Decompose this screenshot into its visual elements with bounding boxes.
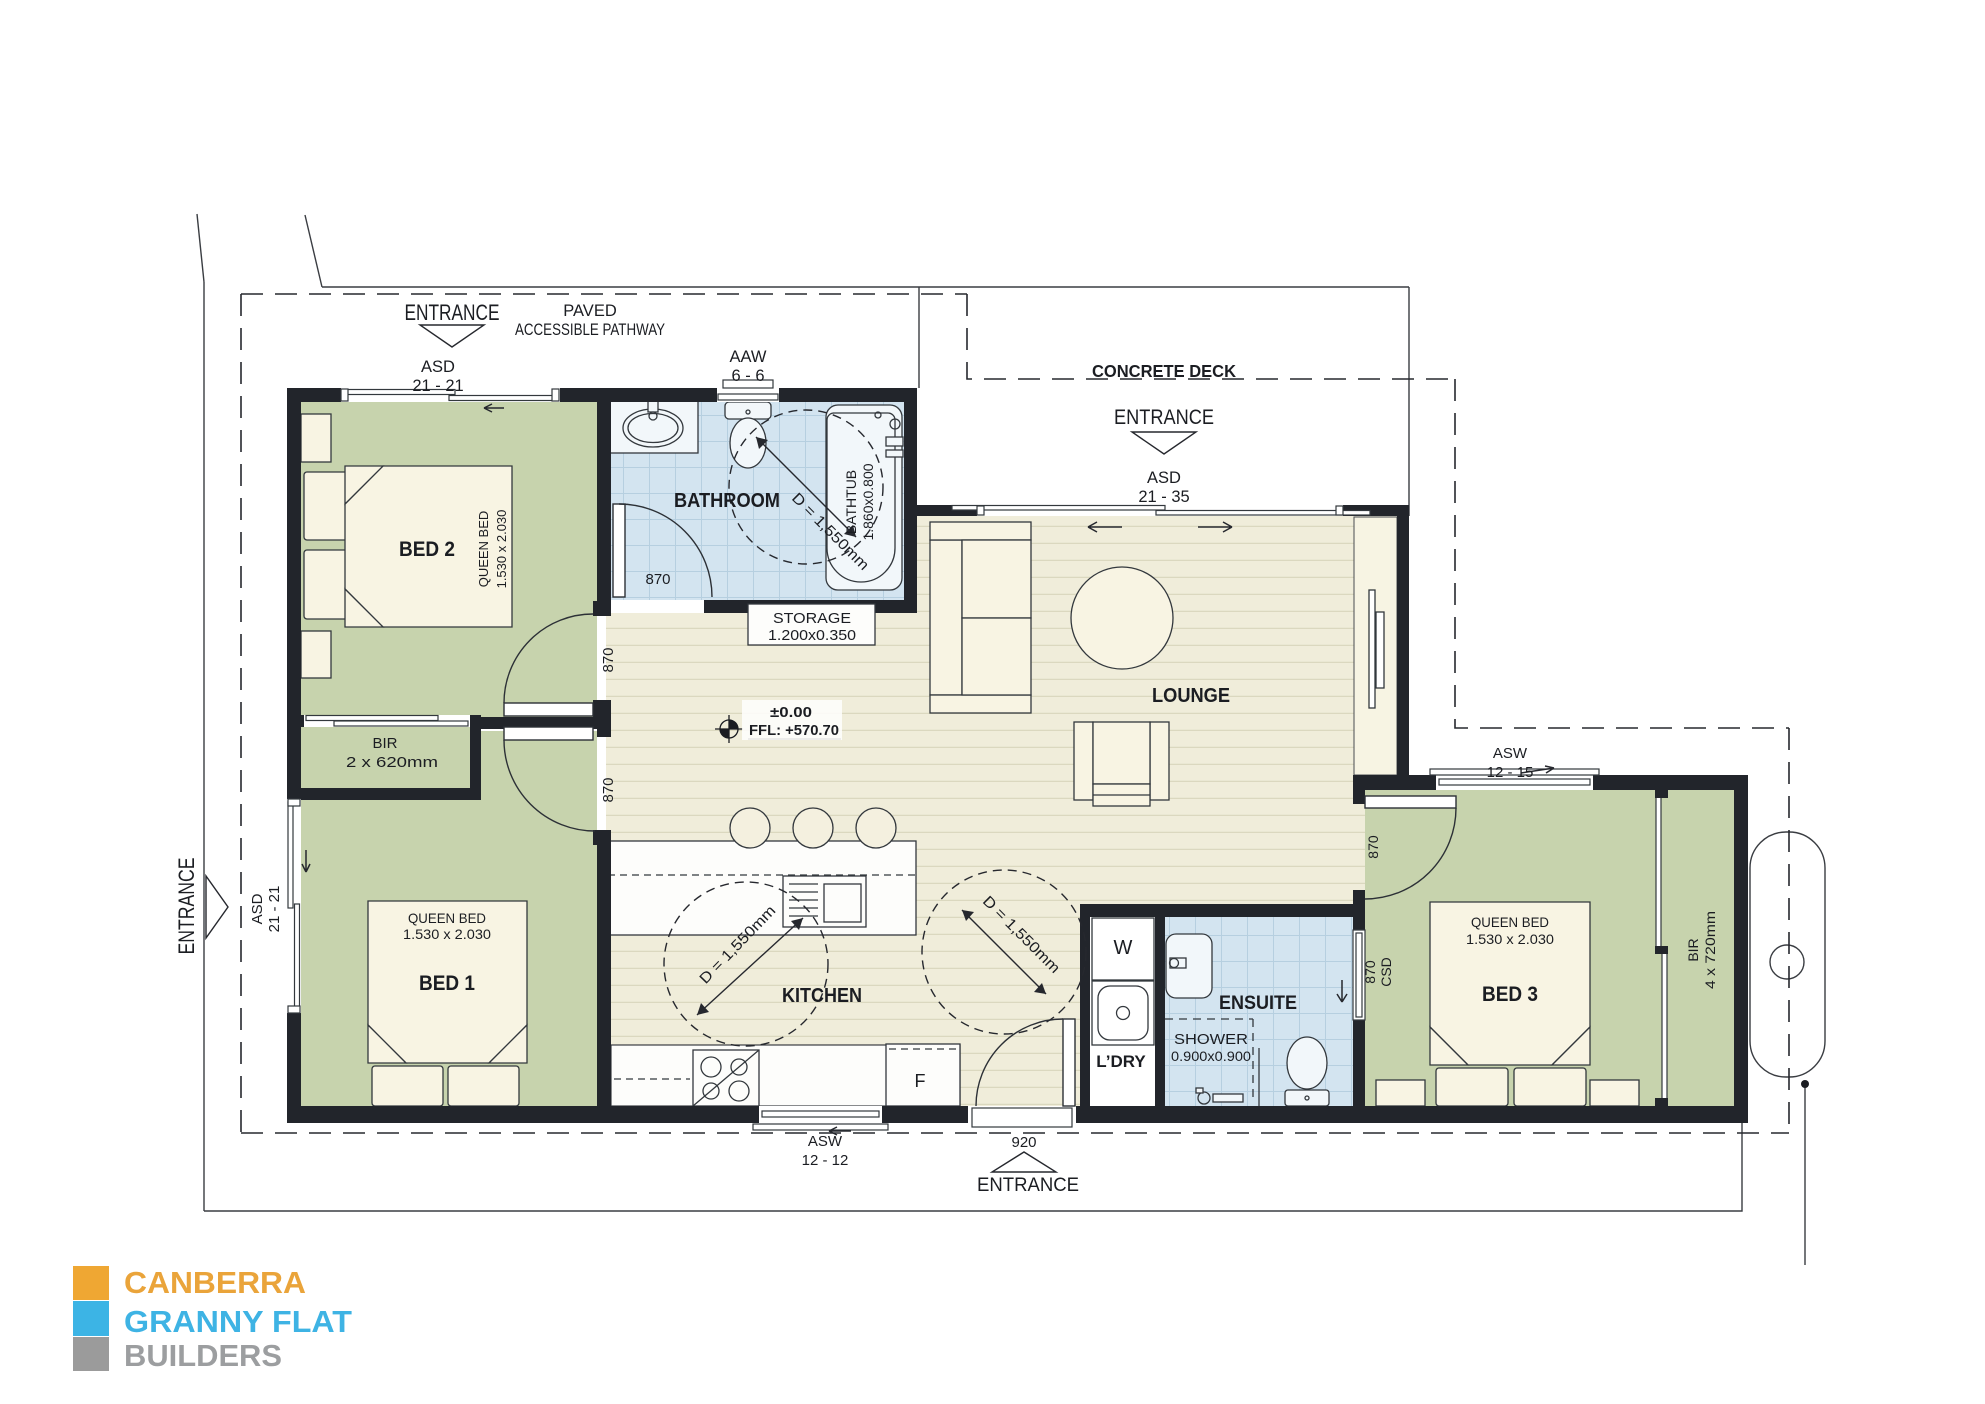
svg-text:BUILDERS: BUILDERS [124,1338,282,1373]
svg-text:12 - 12: 12 - 12 [802,1152,849,1169]
svg-text:PAVED: PAVED [563,302,617,320]
svg-text:FFL: +570.70: FFL: +570.70 [749,722,839,739]
svg-text:W: W [1114,937,1133,959]
svg-text:0.900x0.900: 0.900x0.900 [1171,1048,1251,1064]
svg-text:ASW: ASW [1493,745,1528,762]
svg-text:ENTRANCE: ENTRANCE [1114,406,1214,429]
svg-text:CSD: CSD [1378,957,1394,987]
svg-text:ASD: ASD [249,893,266,924]
svg-text:BED 3: BED 3 [1482,983,1538,1006]
svg-text:1.200x0.350: 1.200x0.350 [768,627,856,644]
svg-text:BED 1: BED 1 [419,972,475,995]
svg-text:ASW: ASW [808,1133,843,1150]
svg-text:870: 870 [600,647,617,672]
svg-text:±0.00: ±0.00 [770,704,812,721]
svg-text:SHOWER: SHOWER [1174,1031,1248,1048]
svg-text:920: 920 [1011,1134,1036,1151]
svg-text:BIR: BIR [1685,938,1701,961]
svg-text:21 - 21: 21 - 21 [412,377,463,395]
svg-text:870: 870 [645,571,670,588]
svg-text:ASD: ASD [421,358,455,376]
svg-text:BED 2: BED 2 [399,538,455,561]
svg-text:ASD: ASD [1147,469,1181,487]
svg-text:2 x 620mm: 2 x 620mm [346,754,438,771]
svg-text:QUEEN BED: QUEEN BED [476,511,491,588]
svg-text:21 - 35: 21 - 35 [1138,488,1189,506]
svg-text:870: 870 [1362,960,1378,984]
svg-text:KITCHEN: KITCHEN [782,985,862,1007]
svg-text:BATHROOM: BATHROOM [674,490,780,512]
svg-text:4 x 720mm: 4 x 720mm [1702,911,1718,989]
svg-text:F: F [915,1071,926,1091]
svg-text:ACCESSIBLE PATHWAY: ACCESSIBLE PATHWAY [515,321,665,339]
svg-text:ENTRANCE: ENTRANCE [405,300,500,325]
svg-text:870: 870 [1365,835,1381,859]
svg-text:BIR: BIR [372,735,397,752]
svg-text:12 - 15: 12 - 15 [1487,764,1534,781]
svg-text:STORAGE: STORAGE [773,610,851,627]
svg-text:QUEEN BED: QUEEN BED [408,910,486,926]
svg-text:L’DRY: L’DRY [1096,1052,1146,1071]
svg-text:AAW: AAW [730,348,767,366]
svg-text:CONCRETE DECK: CONCRETE DECK [1092,361,1236,381]
svg-text:QUEEN BED: QUEEN BED [1471,914,1549,930]
svg-text:1.860x0.800: 1.860x0.800 [860,463,876,540]
svg-text:ENTRANCE: ENTRANCE [174,858,199,955]
svg-text:870: 870 [600,777,617,802]
svg-text:BATHTUB: BATHTUB [843,470,859,534]
svg-text:LOUNGE: LOUNGE [1152,685,1230,707]
svg-text:21 - 21: 21 - 21 [266,886,283,933]
svg-text:GRANNY FLAT: GRANNY FLAT [124,1304,352,1339]
svg-text:1.530 x 2.030: 1.530 x 2.030 [1466,931,1554,947]
svg-text:1.530 x 2.030: 1.530 x 2.030 [494,510,509,589]
svg-text:CANBERRA: CANBERRA [124,1265,306,1300]
svg-text:ENTRANCE: ENTRANCE [977,1175,1079,1196]
svg-text:1.530 x 2.030: 1.530 x 2.030 [403,926,491,942]
svg-text:ENSUITE: ENSUITE [1219,993,1297,1014]
svg-text:6 - 6: 6 - 6 [731,367,764,385]
